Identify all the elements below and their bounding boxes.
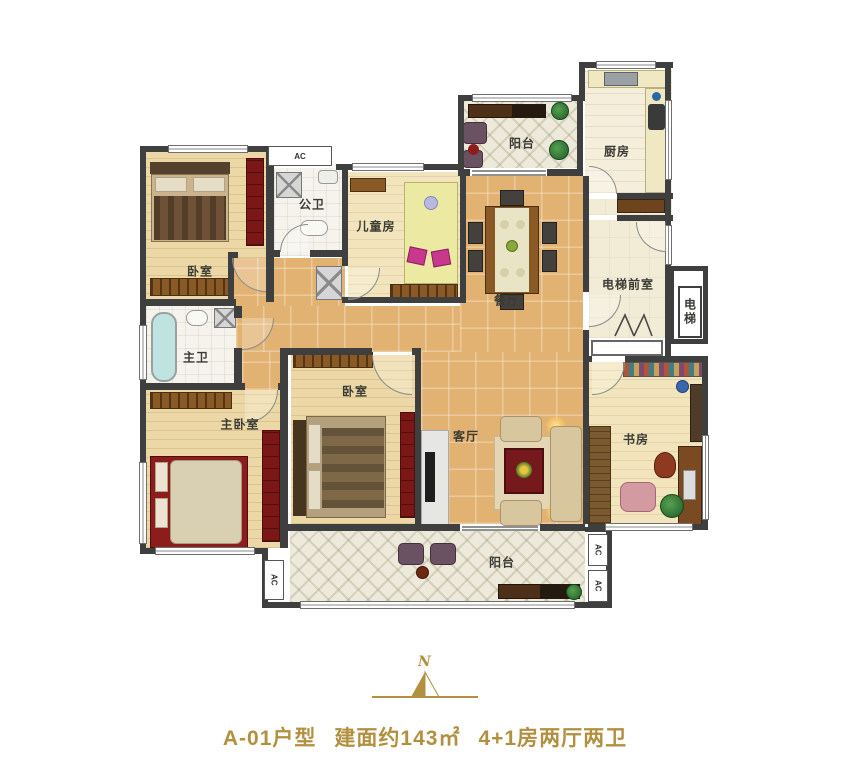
caption: A-01户型建面约143㎡4+1房两厅两卫 [0,722,850,752]
caption-layout: 4+1房两厅两卫 [478,727,627,750]
caption-area: 建面约143㎡ [334,727,460,750]
north-baseline [372,696,478,698]
caption-unit-name: A-01户型 [223,727,317,750]
floor-plan-page: AC AC AC AC 卧室 公卫 儿童房 阳台 厨房 餐厅 电梯前室 电梯 主… [0,0,850,778]
north-arrow-icon [0,0,850,778]
